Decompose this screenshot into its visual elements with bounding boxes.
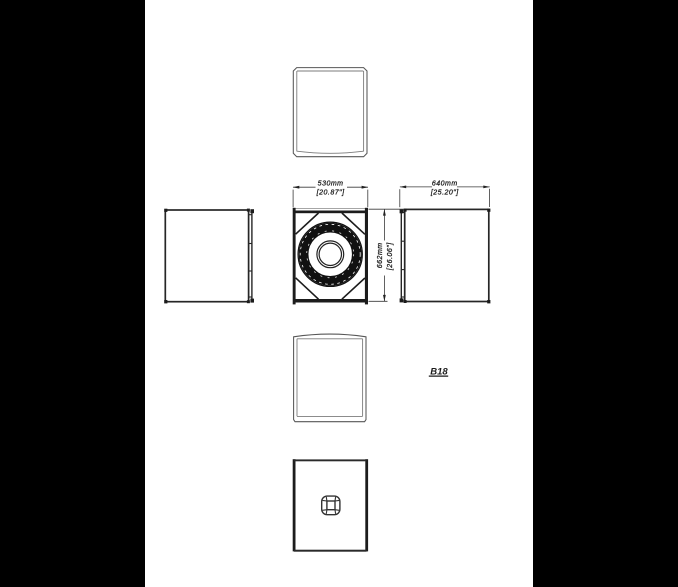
svg-text:[26.06"]: [26.06"] (387, 242, 394, 271)
svg-text:530mm: 530mm (318, 181, 344, 188)
svg-text:[20.87"]: [20.87"] (316, 190, 345, 197)
svg-text:[25.20"]: [25.20"] (430, 189, 459, 196)
svg-text:640mm: 640mm (432, 180, 458, 187)
svg-text:662mm: 662mm (377, 242, 384, 268)
